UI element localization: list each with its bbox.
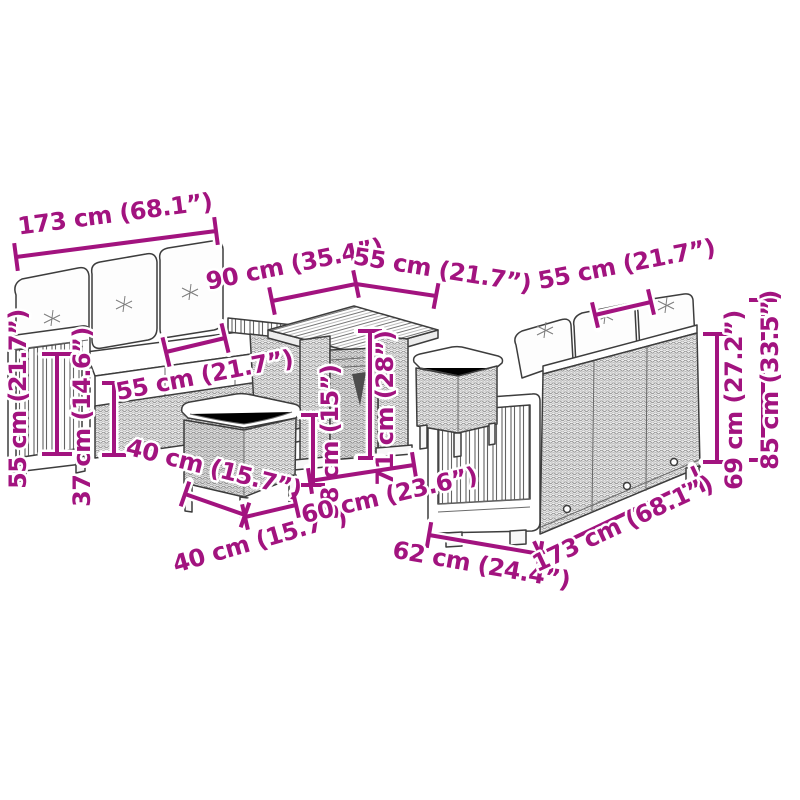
- diagram-canvas: 173 cm (68.1”) 90 cm (35.4”) 55 cm (21.7…: [0, 0, 800, 800]
- dimension-label-sofa-left-height: 55 cm (21.7”): [4, 309, 32, 489]
- dimension-label-sofa-right-back-height: 69 cm (27.2”): [720, 310, 748, 490]
- stool-leg: [420, 425, 427, 449]
- dimension-label-table-height: 71 cm (28”): [371, 331, 399, 486]
- stool-leg: [454, 433, 461, 457]
- dimension-label-sofa-right-total-height: 85 cm (33.5”): [756, 290, 784, 470]
- sofa-leg: [510, 530, 526, 545]
- dim-sofa-right-total-height: 85 cm (33.5”): [749, 290, 784, 470]
- screw-cap: [624, 483, 631, 490]
- rear-stool: [414, 347, 503, 457]
- screw-cap: [671, 459, 678, 466]
- stool-leg: [489, 423, 495, 445]
- screw-cap: [564, 506, 571, 513]
- dimension-label-sofa-right-seat-width: 55 cm (21.7”): [536, 233, 718, 295]
- dimension-label-sofa-left-seat-height: 37 cm (14.6”): [68, 327, 96, 507]
- stool-body: [416, 366, 497, 433]
- furniture-dimension-diagram: 173 cm (68.1”) 90 cm (35.4”) 55 cm (21.7…: [0, 0, 800, 800]
- dim-table-depth: 55 cm (21.7”): [351, 242, 533, 309]
